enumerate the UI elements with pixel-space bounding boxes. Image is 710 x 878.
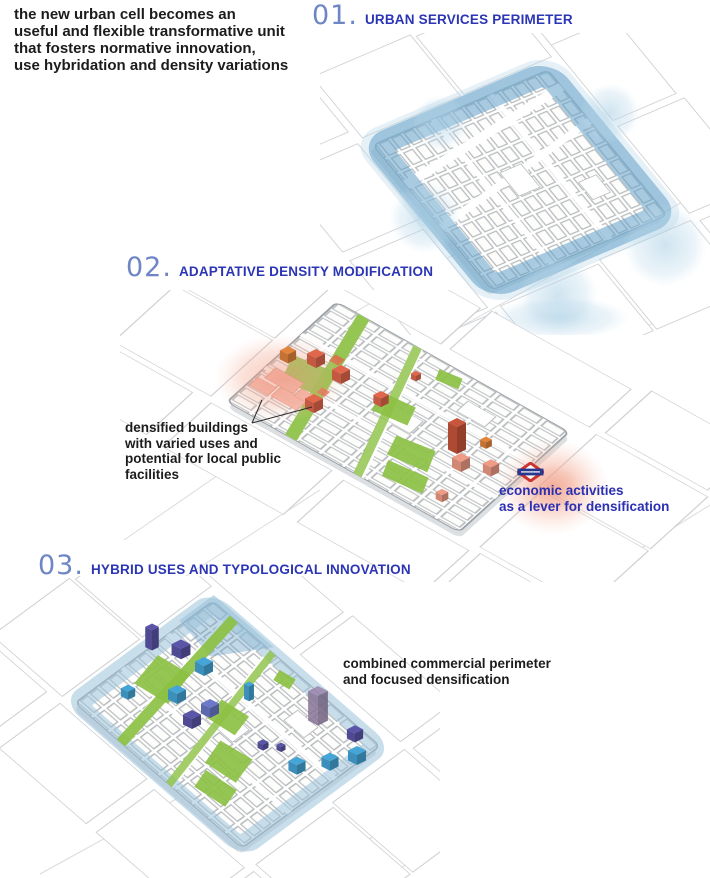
annotation-line: combined commercial perimeter [343,656,551,672]
intro-text: the new urban cell becomes an useful and… [14,6,288,74]
intro-line: use hybridation and density variations [14,57,288,74]
intro-line: the new urban cell becomes an [14,6,288,23]
annotation-densified-buildings: densified buildings with varied uses and… [125,420,281,482]
metro-logo-icon [517,462,544,482]
annotation-line: potential for local public [125,451,281,467]
section-heading-02: 02. ADAPTATIVE DENSITY MODIFICATION [126,252,433,283]
section-title: URBAN SERVICES PERIMETER [365,12,573,27]
section-heading-01: 01. URBAN SERVICES PERIMETER [312,0,573,31]
axon-block [0,576,440,878]
section-number: 02. [126,252,172,283]
poster-canvas: the new urban cell becomes an useful and… [0,0,710,878]
annotation-line: facilities [125,467,281,483]
annotation-economic-activities: economic activities as a lever for densi… [499,483,669,514]
section-title: HYBRID USES AND TYPOLOGICAL INNOVATION [91,562,411,577]
annotation-line: economic activities [499,483,669,499]
annotation-line: as a lever for densification [499,499,669,515]
annotation-line: densified buildings [125,420,281,436]
section-number: 03. [38,550,84,581]
annotation-combined-perimeter: combined commercial perimeter and focuse… [343,656,551,687]
intro-line: useful and flexible transformative unit [14,23,288,40]
annotation-line: with varied uses and [125,436,281,452]
intro-line: that fosters normative innovation, [14,40,288,57]
section-number: 01. [312,0,358,31]
annotation-line: and focused densification [343,672,551,688]
diagram-03-hybrid-uses-typological-innovation [0,576,440,878]
section-title: ADAPTATIVE DENSITY MODIFICATION [179,264,433,279]
section-heading-03: 03. HYBRID USES AND TYPOLOGICAL INNOVATI… [38,550,411,581]
